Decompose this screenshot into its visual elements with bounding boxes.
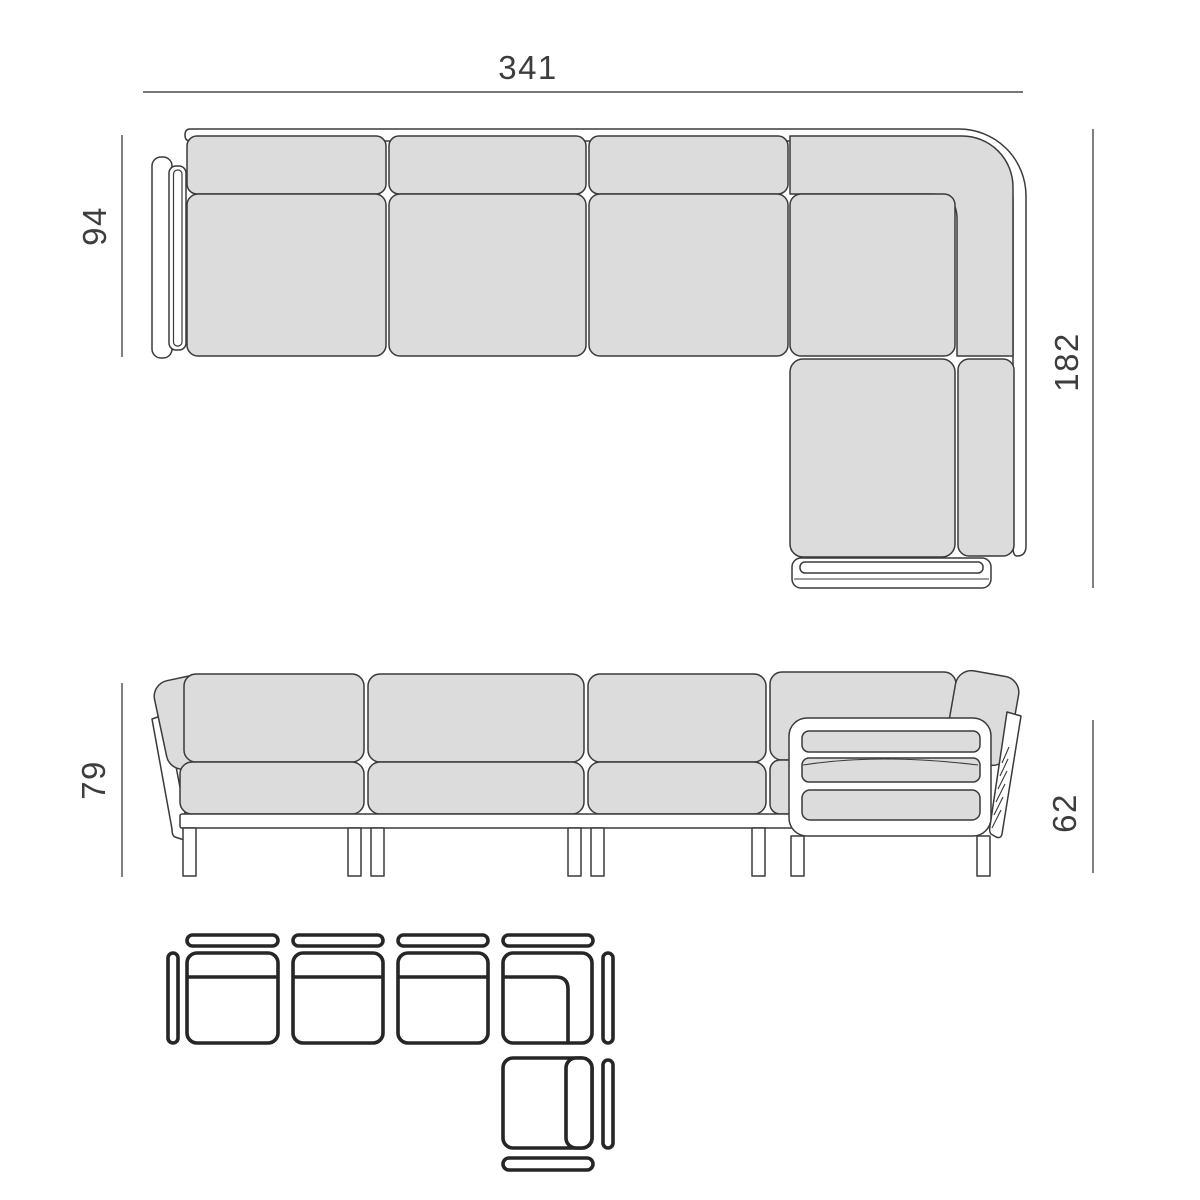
plan-seat-cushion-1 <box>187 194 386 356</box>
plan-back-cushion-3 <box>589 136 788 194</box>
front-back-cushion-2 <box>368 674 584 762</box>
plan-back-cushion-1 <box>187 136 386 194</box>
front-leg <box>371 828 384 876</box>
schematic-back-rail-3 <box>398 935 488 946</box>
front-leg <box>348 828 361 876</box>
module-schematic <box>168 935 613 1170</box>
plan-corner-seat-cushion <box>790 194 955 356</box>
dim-label-overall-width: 341 <box>498 49 558 86</box>
schematic-module-1 <box>187 953 278 1043</box>
plan-view <box>152 129 1026 588</box>
front-leg <box>568 828 581 876</box>
front-corner-slat-3 <box>802 790 980 820</box>
schematic-module-3 <box>398 953 488 1043</box>
front-leg <box>752 828 765 876</box>
front-seat-cushion-1 <box>180 762 364 814</box>
drawing-canvas: 341 94 182 <box>0 0 1200 1200</box>
schematic-module-2 <box>293 953 383 1043</box>
plan-chaise-end-rail <box>800 562 983 573</box>
schematic-right-arm-pill <box>603 953 613 1043</box>
front-seat-cushion-3 <box>588 762 766 814</box>
front-leg <box>791 836 804 876</box>
front-back-cushion-1 <box>184 674 364 762</box>
schematic-module-4-corner <box>503 953 592 1043</box>
plan-left-arm-rail <box>169 166 186 350</box>
dim-label-sofa-depth: 94 <box>76 206 113 246</box>
plan-chaise-side-back-cushion <box>958 359 1014 556</box>
schematic-back-rail-4 <box>503 935 593 946</box>
front-leg <box>591 828 604 876</box>
plan-chaise-seat-cushion <box>790 359 955 557</box>
front-leg <box>977 836 990 876</box>
plan-back-cushion-2 <box>389 136 586 194</box>
plan-seat-cushion-3 <box>589 194 788 356</box>
schematic-back-rail-2 <box>293 935 383 946</box>
front-seat-cushion-2 <box>368 762 584 814</box>
front-leg <box>183 828 196 876</box>
schematic-back-rail-1 <box>187 935 278 946</box>
schematic-chaise-arm-pill <box>603 1060 613 1148</box>
dim-label-chaise-depth: 182 <box>1048 332 1085 392</box>
schematic-chaise-side-back <box>566 1058 592 1148</box>
dim-label-back-height: 79 <box>75 760 112 800</box>
schematic-left-arm-pill <box>168 953 178 1043</box>
plan-seat-cushion-2 <box>389 194 586 356</box>
schematic-chaise-end-rail <box>503 1158 593 1170</box>
sofa-dimension-drawing: 341 94 182 <box>0 0 1200 1200</box>
dim-label-arm-height: 62 <box>1046 793 1083 833</box>
front-back-cushion-3 <box>588 674 766 762</box>
front-view <box>151 668 1021 876</box>
front-corner-slat-1 <box>802 731 980 752</box>
